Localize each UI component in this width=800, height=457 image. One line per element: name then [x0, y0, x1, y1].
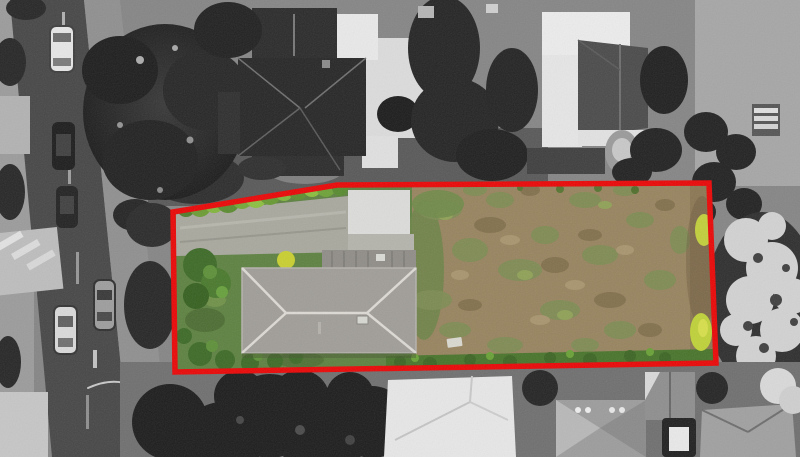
aerial-photo-stage: [0, 0, 800, 457]
aerial-photo: [0, 0, 800, 457]
grain-overlay: [0, 0, 800, 457]
